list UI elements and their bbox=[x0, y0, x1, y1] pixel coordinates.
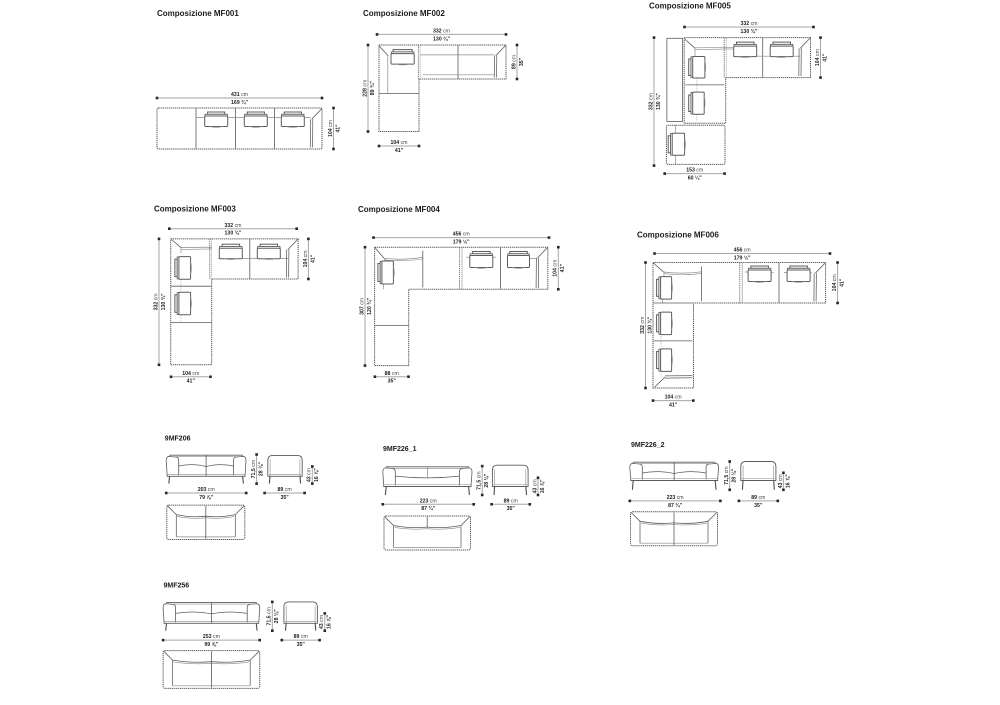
svg-text:41": 41" bbox=[395, 148, 404, 154]
svg-text:307 cm: 307 cm bbox=[359, 298, 365, 315]
svg-text:28 ⅛": 28 ⅛" bbox=[732, 468, 738, 483]
svg-text:253 cm: 253 cm bbox=[203, 634, 220, 640]
svg-text:120 ¾": 120 ¾" bbox=[366, 297, 373, 314]
svg-text:332 cm: 332 cm bbox=[740, 21, 757, 27]
svg-text:41": 41" bbox=[310, 254, 316, 263]
svg-text:89 cm: 89 cm bbox=[511, 55, 517, 69]
svg-text:79 ⅞": 79 ⅞" bbox=[199, 495, 214, 501]
svg-text:89 cm: 89 cm bbox=[294, 634, 308, 640]
svg-text:130 ¾": 130 ¾" bbox=[225, 230, 242, 237]
svg-text:9MF226_1: 9MF226_1 bbox=[383, 446, 417, 453]
svg-text:89 ¾": 89 ¾" bbox=[369, 81, 376, 96]
svg-text:203 cm: 203 cm bbox=[198, 487, 215, 493]
svg-text:41": 41" bbox=[840, 278, 846, 287]
svg-text:41": 41" bbox=[669, 403, 678, 409]
svg-text:456 cm: 456 cm bbox=[453, 232, 470, 238]
svg-text:43 cm: 43 cm bbox=[532, 479, 538, 493]
svg-text:89 cm: 89 cm bbox=[751, 495, 765, 501]
svg-text:41": 41" bbox=[560, 264, 566, 273]
svg-text:332 cm: 332 cm bbox=[433, 29, 450, 35]
svg-text:9MF226_2: 9MF226_2 bbox=[631, 442, 665, 449]
svg-text:228 cm: 228 cm bbox=[362, 80, 368, 97]
svg-text:104 cm: 104 cm bbox=[390, 140, 407, 146]
svg-text:41": 41" bbox=[822, 53, 828, 62]
svg-text:89 cm: 89 cm bbox=[504, 498, 518, 504]
svg-text:28 ⅛": 28 ⅛" bbox=[484, 473, 490, 488]
svg-text:153 cm: 153 cm bbox=[686, 168, 703, 174]
svg-text:43 cm: 43 cm bbox=[319, 615, 325, 629]
svg-text:456 cm: 456 cm bbox=[734, 248, 751, 254]
svg-text:332 cm: 332 cm bbox=[640, 317, 646, 334]
svg-text:71,5 cm: 71,5 cm bbox=[724, 466, 730, 484]
svg-text:130 ¾": 130 ¾" bbox=[655, 93, 662, 110]
svg-text:16 ⅞": 16 ⅞" bbox=[327, 614, 333, 629]
svg-text:431 cm: 431 cm bbox=[231, 92, 248, 98]
svg-text:Composizione MF003: Composizione MF003 bbox=[154, 205, 236, 214]
svg-text:35": 35" bbox=[507, 506, 516, 512]
svg-text:130 ¾": 130 ¾" bbox=[646, 316, 653, 333]
svg-text:43 cm: 43 cm bbox=[778, 474, 784, 488]
svg-text:35": 35" bbox=[388, 379, 397, 385]
svg-text:332 cm: 332 cm bbox=[648, 93, 654, 110]
svg-text:28 ⅛": 28 ⅛" bbox=[274, 609, 280, 624]
svg-text:104 cm: 104 cm bbox=[815, 49, 821, 66]
svg-text:104 cm: 104 cm bbox=[303, 250, 309, 267]
svg-text:9MF256: 9MF256 bbox=[164, 582, 190, 589]
svg-text:35": 35" bbox=[519, 57, 525, 66]
svg-text:130 ¾": 130 ¾" bbox=[433, 35, 450, 42]
svg-text:28 ⅛": 28 ⅛" bbox=[259, 462, 265, 477]
svg-text:35": 35" bbox=[297, 642, 306, 648]
svg-text:9MF206: 9MF206 bbox=[165, 435, 191, 442]
svg-text:99 ⅝": 99 ⅝" bbox=[204, 642, 219, 648]
svg-text:223 cm: 223 cm bbox=[667, 495, 684, 501]
svg-text:Composizione MF005: Composizione MF005 bbox=[649, 2, 731, 11]
svg-text:41": 41" bbox=[187, 379, 196, 385]
svg-text:41": 41" bbox=[335, 124, 341, 133]
svg-text:16 ⅞": 16 ⅞" bbox=[540, 479, 546, 494]
svg-text:223 cm: 223 cm bbox=[420, 498, 437, 504]
svg-text:130 ¾": 130 ¾" bbox=[160, 293, 167, 310]
svg-text:60 ¼": 60 ¼" bbox=[688, 175, 703, 182]
svg-text:43 cm: 43 cm bbox=[307, 468, 313, 482]
svg-text:169 ¾": 169 ¾" bbox=[231, 99, 248, 106]
svg-text:71,5 cm: 71,5 cm bbox=[267, 607, 273, 625]
svg-text:104 cm: 104 cm bbox=[832, 274, 838, 291]
svg-text:88 cm: 88 cm bbox=[385, 371, 399, 377]
svg-text:87 ¾": 87 ¾" bbox=[668, 502, 683, 509]
svg-text:Composizione MF001: Composizione MF001 bbox=[157, 9, 239, 18]
svg-text:71,5 cm: 71,5 cm bbox=[251, 460, 257, 478]
svg-text:332 cm: 332 cm bbox=[153, 293, 159, 310]
svg-text:Composizione MF004: Composizione MF004 bbox=[358, 205, 440, 214]
svg-text:87 ¾": 87 ¾" bbox=[421, 505, 436, 512]
svg-text:332 cm: 332 cm bbox=[224, 223, 241, 229]
svg-text:16 ⅞": 16 ⅞" bbox=[785, 474, 791, 489]
svg-text:35": 35" bbox=[754, 503, 763, 509]
svg-text:104 cm: 104 cm bbox=[665, 395, 682, 401]
svg-text:179 ½": 179 ½" bbox=[453, 239, 470, 246]
svg-text:16 ⅞": 16 ⅞" bbox=[314, 468, 320, 483]
svg-text:71,5 cm: 71,5 cm bbox=[477, 471, 483, 489]
svg-text:35": 35" bbox=[280, 495, 289, 501]
svg-text:104 cm: 104 cm bbox=[182, 371, 199, 377]
svg-text:89 cm: 89 cm bbox=[278, 487, 292, 493]
svg-text:104 cm: 104 cm bbox=[553, 260, 559, 277]
svg-text:179 ½": 179 ½" bbox=[734, 254, 751, 261]
svg-text:104 cm: 104 cm bbox=[328, 120, 334, 137]
svg-text:Composizione MF006: Composizione MF006 bbox=[637, 231, 719, 240]
svg-text:130 ¾": 130 ¾" bbox=[741, 28, 758, 35]
svg-text:Composizione MF002: Composizione MF002 bbox=[363, 9, 445, 18]
